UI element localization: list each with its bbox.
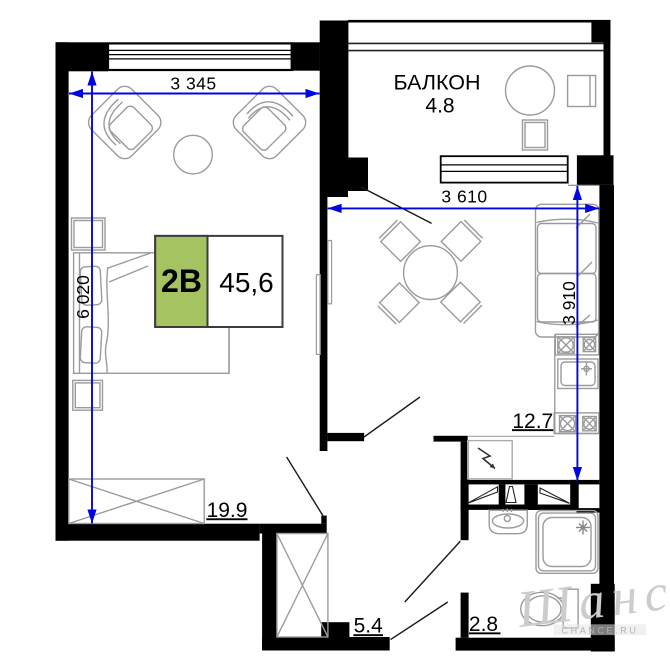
svg-text:3 610: 3 610 (441, 187, 487, 207)
svg-text:5.4: 5.4 (354, 615, 384, 638)
svg-text:4.8: 4.8 (425, 95, 454, 118)
svg-text:CHANCE.RU: CHANCE.RU (562, 625, 639, 635)
svg-text:2В: 2В (161, 263, 202, 299)
svg-text:6 020: 6 020 (73, 275, 93, 319)
svg-text:3 910: 3 910 (559, 281, 579, 325)
svg-text:45,6: 45,6 (219, 267, 274, 298)
svg-text:3 345: 3 345 (170, 73, 216, 93)
svg-text:БАЛКОН: БАЛКОН (393, 71, 480, 95)
